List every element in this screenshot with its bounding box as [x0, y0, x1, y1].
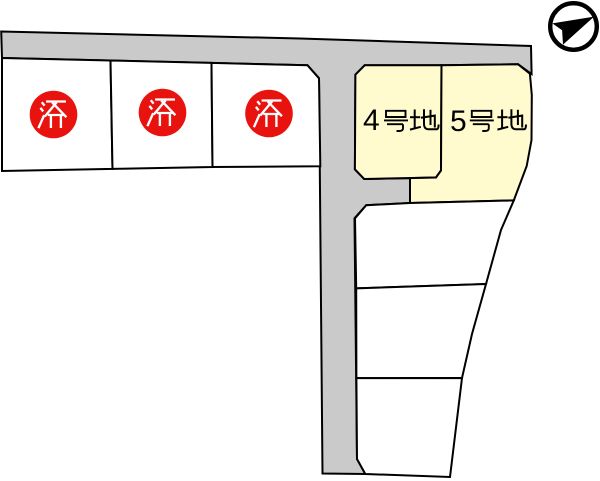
svg-text:5: 5: [450, 105, 467, 138]
svg-text:4: 4: [363, 104, 380, 137]
